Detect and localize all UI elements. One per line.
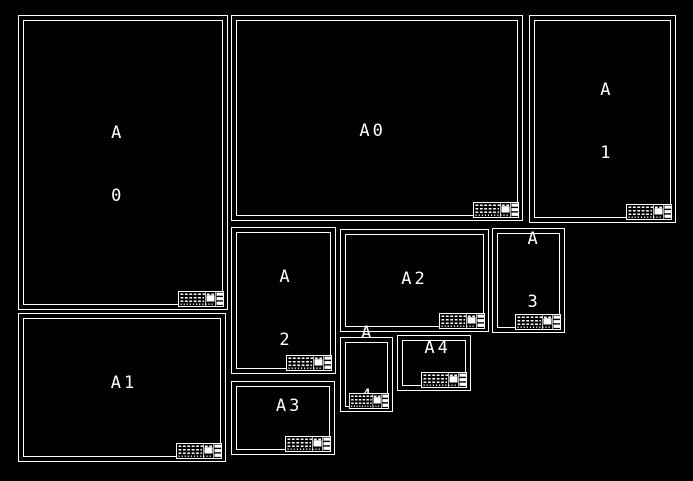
sheet-a3-landscape[interactable]: A3 xyxy=(231,381,335,455)
sheet-label-line2: 1 xyxy=(567,143,646,164)
sheet-a1-landscape[interactable]: A1 xyxy=(18,313,226,462)
sheet-a4-portrait[interactable]: A 4 xyxy=(340,337,393,412)
sheet-label-line1: A4 xyxy=(398,338,477,359)
sheet-label-line1: A xyxy=(567,80,646,101)
sheet-label-line1: A0 xyxy=(333,121,412,142)
sheet-label: A4 xyxy=(398,296,477,422)
title-block xyxy=(349,393,389,409)
sheet-a2-portrait[interactable]: A 2 xyxy=(231,227,336,374)
sheet-a4-landscape[interactable]: A4 xyxy=(397,335,471,391)
title-block xyxy=(626,204,672,220)
sheet-label-line2: 0 xyxy=(78,186,157,207)
sheet-label-line1: A3 xyxy=(249,396,328,417)
title-block xyxy=(178,291,224,307)
cad-canvas: A 0 A0 A 1 A1 A 2 xyxy=(0,0,693,481)
title-block xyxy=(285,436,331,452)
title-block xyxy=(176,443,222,459)
sheet-label-line2: 3 xyxy=(494,292,573,313)
sheet-label-line1: A xyxy=(328,323,407,344)
sheet-label: A1 xyxy=(84,331,163,457)
title-block xyxy=(515,314,561,330)
sheet-label: A 4 xyxy=(328,281,407,449)
title-block xyxy=(421,372,467,388)
sheet-label: A 0 xyxy=(78,81,157,249)
sheet-label-line1: A xyxy=(246,267,325,288)
sheet-label-line1: A xyxy=(78,123,157,144)
sheet-label-line2: 2 xyxy=(246,330,325,351)
sheet-label: A0 xyxy=(333,79,412,205)
sheet-a0-landscape[interactable]: A0 xyxy=(231,15,523,221)
sheet-a0-portrait[interactable]: A 0 xyxy=(18,15,228,310)
sheet-label: A3 xyxy=(249,354,328,480)
sheet-a3-portrait[interactable]: A 3 xyxy=(492,228,565,333)
sheet-label: A 1 xyxy=(567,38,646,206)
sheet-label-line1: A xyxy=(494,229,573,250)
sheet-label-line1: A1 xyxy=(84,373,163,394)
